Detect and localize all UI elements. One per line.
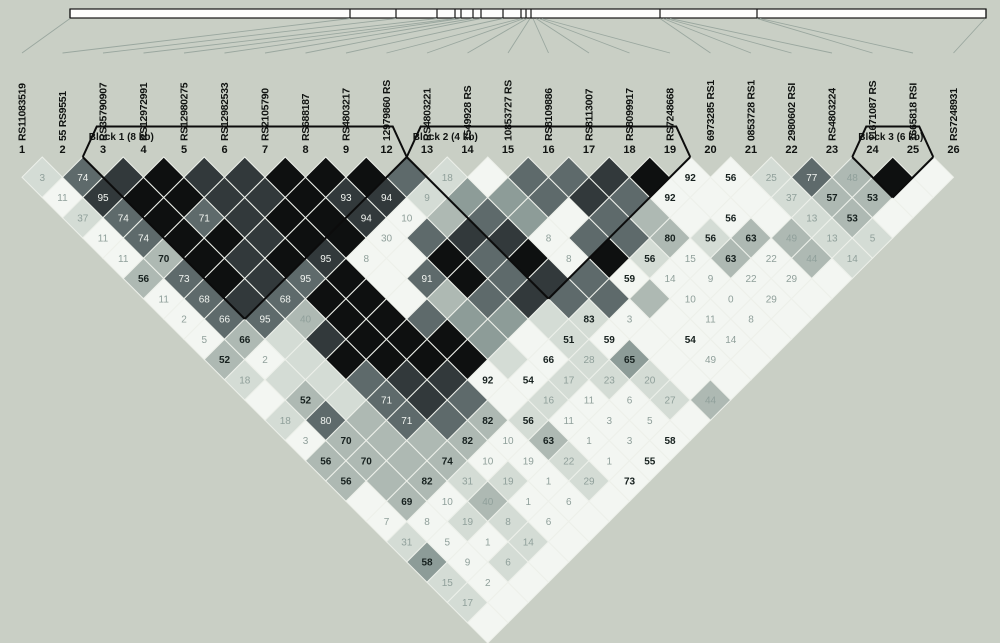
ld-cell-value: 11 — [584, 396, 595, 407]
ld-cell-value: 31 — [462, 477, 474, 488]
marker-label: RS4803224 — [827, 88, 839, 141]
marker-label: RS8099917 — [624, 88, 636, 141]
marker-label: RS7248668 — [665, 88, 677, 141]
ld-cell-value: 0 — [728, 294, 734, 305]
ld-cell-value: 20 — [644, 375, 656, 386]
ld-cell-value: 17 — [462, 598, 474, 609]
ld-cell-value: 17 — [563, 375, 575, 386]
ld-cell-value: 3 — [303, 436, 309, 447]
marker-label: RS4803217 — [341, 88, 353, 141]
ld-cell-value: 29 — [583, 477, 595, 488]
ld-cell-value: 22 — [766, 254, 778, 265]
marker-number: 26 — [947, 144, 959, 156]
ld-cell-value: 22 — [563, 456, 575, 467]
ld-cell-value: 8 — [748, 315, 754, 326]
ld-cell-value: 6 — [566, 497, 572, 508]
ld-cell-value: 80 — [664, 234, 676, 245]
ld-cell-value: 53 — [847, 213, 859, 224]
marker-number: 7 — [262, 144, 268, 156]
ld-cell-value: 10 — [442, 497, 454, 508]
ld-cell-value: 71 — [199, 213, 211, 224]
ld-cell-value: 71 — [401, 416, 413, 427]
ld-cell-value: 29 — [786, 274, 798, 285]
ld-cell-value: 65 — [624, 355, 636, 366]
ld-cell-value: 14 — [523, 537, 535, 548]
ld-cell-value: 25 — [766, 173, 778, 184]
marker-label: RS8113007 — [584, 88, 596, 141]
marker-label: 6973285 RS1 — [705, 80, 717, 141]
ld-cell-value: 69 — [401, 497, 413, 508]
ld-cell-value: 15 — [685, 254, 697, 265]
ld-cell-value: 80 — [320, 416, 332, 427]
ld-cell-value: 74 — [77, 173, 89, 184]
marker-number: 9 — [343, 144, 349, 156]
ld-cell-value: 73 — [624, 477, 636, 488]
block-label: Block 1 (8 kb) — [89, 132, 154, 143]
ld-cell-value: 18 — [280, 416, 292, 427]
ld-cell-value: 73 — [178, 274, 190, 285]
marker-connector-line — [533, 19, 549, 54]
ld-cell-value: 56 — [523, 416, 535, 427]
marker-connector-line — [22, 19, 70, 54]
marker-connector-line — [663, 19, 751, 54]
ld-cell-value: 83 — [583, 315, 595, 326]
marker-number: 8 — [302, 144, 308, 156]
ld-cell-value: 28 — [583, 355, 595, 366]
ld-cell-value: 1 — [485, 537, 491, 548]
marker-number: 18 — [623, 144, 635, 156]
ld-cell-value: 51 — [563, 335, 575, 346]
ld-cell-value: 44 — [806, 254, 818, 265]
ld-cell-value: 63 — [745, 234, 757, 245]
ld-cell-value: 5 — [444, 537, 450, 548]
marker-label: 0853728 RS1 — [746, 80, 758, 141]
ld-cell-value: 54 — [685, 335, 697, 346]
marker-label: 55 RS9551 — [57, 91, 69, 141]
ld-cell-value: 5 — [647, 416, 653, 427]
ld-cell-value: 95 — [300, 274, 312, 285]
ld-cell-value: 11 — [98, 234, 109, 245]
ld-cell-value: 93 — [340, 193, 352, 204]
ld-cell-value: 77 — [806, 173, 818, 184]
ld-cell-value: 13 — [806, 213, 818, 224]
ld-cell-value: 19 — [462, 517, 474, 528]
ld-cell-value: 14 — [664, 274, 676, 285]
marker-label: 2980602 RSI — [786, 83, 798, 141]
ld-cell-value: 3 — [606, 416, 612, 427]
ld-plot: RS11083519155 RS95512RS357909073RS129729… — [0, 0, 1000, 643]
ld-cell-value: 10 — [502, 436, 514, 447]
marker-number: 24 — [866, 144, 879, 156]
ld-cell-value: 68 — [199, 294, 211, 305]
ld-cell-value: 57 — [826, 193, 838, 204]
marker-number: 21 — [745, 144, 757, 156]
ld-cell-value: 7 — [384, 517, 390, 528]
ld-cell-value: 52 — [219, 355, 231, 366]
marker-connector-line — [760, 19, 913, 54]
ld-cell-value: 92 — [685, 173, 697, 184]
ld-cell-value: 54 — [523, 375, 535, 386]
ld-cell-value: 52 — [300, 396, 312, 407]
marker-number: 12 — [380, 144, 392, 156]
ld-cell-value: 2 — [181, 315, 187, 326]
ld-cell-value: 70 — [361, 456, 373, 467]
ld-cell-value: 10 — [401, 213, 413, 224]
ld-cell-value: 70 — [158, 254, 170, 265]
ld-cell-value: 58 — [664, 436, 676, 447]
ld-cell-value: 6 — [505, 558, 511, 569]
ld-cell-value: 11 — [705, 315, 716, 326]
ld-cell-value: 30 — [381, 234, 393, 245]
marker-label: RS11083519 — [17, 83, 29, 141]
ld-cell-value: 29 — [766, 294, 778, 305]
ld-cell-value: 49 — [705, 355, 717, 366]
ld-cell-value: 19 — [502, 477, 514, 488]
ld-cell-value: 22 — [745, 274, 757, 285]
ld-cell-value: 56 — [725, 173, 737, 184]
ld-cell-value: 1 — [586, 436, 592, 447]
marker-label: RS2105790 — [260, 88, 272, 141]
ld-cell-value: 63 — [725, 254, 737, 265]
marker-connector-line — [954, 19, 986, 54]
marker-number: 1 — [19, 144, 25, 156]
ld-cell-value: 9 — [465, 558, 471, 569]
marker-number: 6 — [221, 144, 227, 156]
marker-number: 20 — [704, 144, 716, 156]
marker-connector-line — [63, 19, 351, 54]
ld-cell-value: 56 — [320, 456, 332, 467]
ld-cell-value: 48 — [847, 173, 859, 184]
ld-cell-value: 11 — [118, 254, 129, 265]
ld-cell-value: 74 — [138, 234, 150, 245]
ld-cell-value: 95 — [320, 254, 332, 265]
marker-label: 10853727 RS — [503, 80, 515, 141]
marker-connector-line — [539, 19, 630, 54]
marker-number: 2 — [59, 144, 65, 156]
marker-label: RS688187 — [300, 93, 312, 141]
ld-cell-value: 70 — [340, 436, 352, 447]
ld-cell-value: 94 — [361, 213, 373, 224]
ld-cell-value: 95 — [259, 315, 271, 326]
ld-cell-value: 16 — [543, 396, 555, 407]
ld-cell-value: 11 — [564, 416, 575, 427]
ld-cell-value: 58 — [421, 558, 433, 569]
marker-number: 22 — [785, 144, 797, 156]
ld-cell-value: 37 — [77, 213, 89, 224]
ld-cell-value: 82 — [421, 477, 433, 488]
ld-cell-value: 9 — [424, 193, 430, 204]
ld-cell-value: 10 — [482, 456, 494, 467]
marker-number: 25 — [907, 144, 919, 156]
marker-connector-line — [103, 19, 396, 54]
marker-label: RS12982533 — [219, 82, 231, 141]
ld-plot-canvas: RS11083519155 RS95512RS357909073RS129729… — [0, 0, 1000, 643]
ld-cell-value: 53 — [867, 193, 879, 204]
ld-cell-value: 37 — [786, 193, 798, 204]
ld-cell-value: 18 — [442, 173, 454, 184]
ld-cell-value: 92 — [664, 193, 676, 204]
ld-cell-value: 13 — [826, 234, 838, 245]
ld-cell-value: 18 — [239, 375, 251, 386]
ld-cell-value: 15 — [442, 578, 454, 589]
block-label: Block 3 (6 kb) — [858, 132, 923, 143]
ld-cell-value: 6 — [546, 517, 552, 528]
marker-label: RS7248931 — [948, 88, 960, 141]
ld-cell-value: 31 — [401, 537, 413, 548]
ld-cell-value: 59 — [624, 274, 636, 285]
ld-cell-value: 40 — [300, 315, 312, 326]
ld-cell-value: 14 — [725, 335, 737, 346]
chromosome-bar — [70, 9, 986, 18]
ld-cell-value: 1 — [525, 497, 531, 508]
ld-cell-value: 56 — [705, 234, 717, 245]
ld-cell-value: 1 — [606, 456, 612, 467]
ld-cell-value: 95 — [97, 193, 109, 204]
ld-cell-value: 6 — [627, 396, 633, 407]
marker-connector-line — [184, 19, 455, 54]
marker-label: 12979860 RS — [381, 80, 393, 141]
ld-cell-value: 59 — [604, 335, 616, 346]
ld-cell-value: 19 — [523, 456, 535, 467]
ld-cell-value: 1 — [546, 477, 552, 488]
ld-cell-value: 3 — [627, 315, 633, 326]
marker-connector-line — [508, 19, 530, 54]
marker-number: 4 — [140, 144, 147, 156]
ld-cell-value: 56 — [644, 254, 656, 265]
marker-connector-line — [542, 19, 670, 54]
ld-cell-value: 3 — [39, 173, 45, 184]
ld-cell-value: 5 — [201, 335, 207, 346]
ld-cell-value: 2 — [485, 578, 491, 589]
marker-label: RS12980275 — [179, 82, 191, 141]
marker-number: 3 — [100, 144, 106, 156]
ld-cell-value: 8 — [424, 517, 430, 528]
marker-number: 14 — [461, 144, 474, 156]
ld-cell-value: 23 — [604, 375, 616, 386]
ld-cell-value: 71 — [381, 396, 393, 407]
ld-cell-value: 82 — [462, 436, 474, 447]
ld-cell-value: 8 — [505, 517, 511, 528]
ld-cell-value: 56 — [138, 274, 150, 285]
ld-cell-value: 9 — [708, 274, 714, 285]
ld-cell-value: 92 — [482, 375, 494, 386]
ld-cell-value: 5 — [870, 234, 876, 245]
ld-cell-value: 14 — [847, 254, 859, 265]
ld-cell-value: 2 — [262, 355, 268, 366]
ld-cell-value: 66 — [543, 355, 555, 366]
ld-cell-value: 11 — [57, 193, 68, 204]
ld-cell-value: 44 — [705, 396, 717, 407]
ld-cell-value: 56 — [340, 477, 352, 488]
ld-cell-value: 8 — [363, 254, 369, 265]
block-label: Block 2 (4 kb) — [413, 132, 478, 143]
ld-cell-value: 74 — [442, 456, 454, 467]
ld-cell-value: 40 — [482, 497, 494, 508]
ld-cell-value: 27 — [664, 396, 676, 407]
ld-cell-value: 63 — [543, 436, 555, 447]
marker-label: RS8109886 — [543, 88, 555, 141]
ld-cell-value: 10 — [685, 294, 697, 305]
ld-cell-value: 55 — [644, 456, 656, 467]
ld-cell-value: 49 — [786, 234, 798, 245]
ld-cell-value: 91 — [421, 274, 433, 285]
ld-cell-value: 8 — [546, 234, 552, 245]
marker-connector-line — [670, 19, 832, 54]
ld-cell-value: 82 — [482, 416, 494, 427]
marker-number: 17 — [583, 144, 595, 156]
ld-cell-value: 56 — [725, 213, 737, 224]
ld-cell-value: 66 — [219, 315, 231, 326]
marker-number: 5 — [181, 144, 187, 156]
marker-number: 16 — [542, 144, 554, 156]
marker-number: 19 — [664, 144, 676, 156]
marker-number: 23 — [826, 144, 838, 156]
ld-cell-value: 11 — [159, 294, 170, 305]
marker-number: 15 — [502, 144, 514, 156]
ld-cell-value: 3 — [627, 436, 633, 447]
ld-cell-value: 8 — [566, 254, 572, 265]
marker-number: 13 — [421, 144, 433, 156]
ld-cell-value: 94 — [381, 193, 393, 204]
ld-cell-value: 68 — [280, 294, 292, 305]
ld-cell-value: 66 — [239, 335, 251, 346]
ld-cell-value: 74 — [118, 213, 130, 224]
